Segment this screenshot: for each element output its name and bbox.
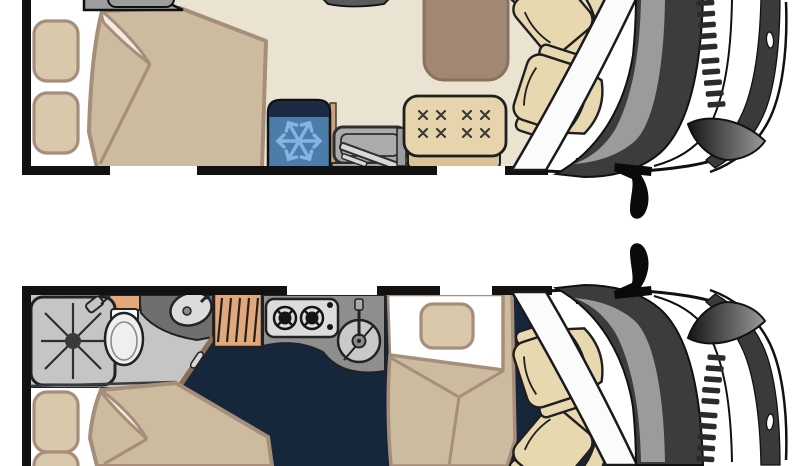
window-gap [437, 166, 505, 175]
front-bed [388, 293, 515, 466]
overhead-unit [322, 0, 390, 7]
cab-top [501, 0, 786, 219]
window-gap [440, 286, 492, 295]
bathroom [31, 287, 216, 387]
floorplan-graphic [0, 0, 796, 466]
pillow [421, 304, 473, 348]
shower-icon [31, 295, 115, 385]
motorhome-floorplans [0, 0, 796, 466]
hob-knob [327, 324, 333, 330]
fridge-icon [268, 100, 336, 168]
pillow [34, 392, 78, 452]
pillow [34, 93, 78, 153]
hob-icon [266, 299, 338, 337]
wardrobe-icon [214, 293, 262, 347]
pillow [34, 452, 78, 466]
floorplan-bottom [22, 243, 786, 466]
toilet-icon [105, 309, 143, 365]
bench-seat [397, 96, 506, 168]
floorplan-top [22, 0, 786, 219]
window-gap [110, 166, 197, 175]
dinette-table [424, 0, 508, 80]
hob-knob [327, 302, 333, 308]
cab-bottom [501, 243, 786, 466]
window-gap [287, 286, 377, 295]
pillow [34, 21, 78, 81]
counter-inset [108, 0, 174, 7]
